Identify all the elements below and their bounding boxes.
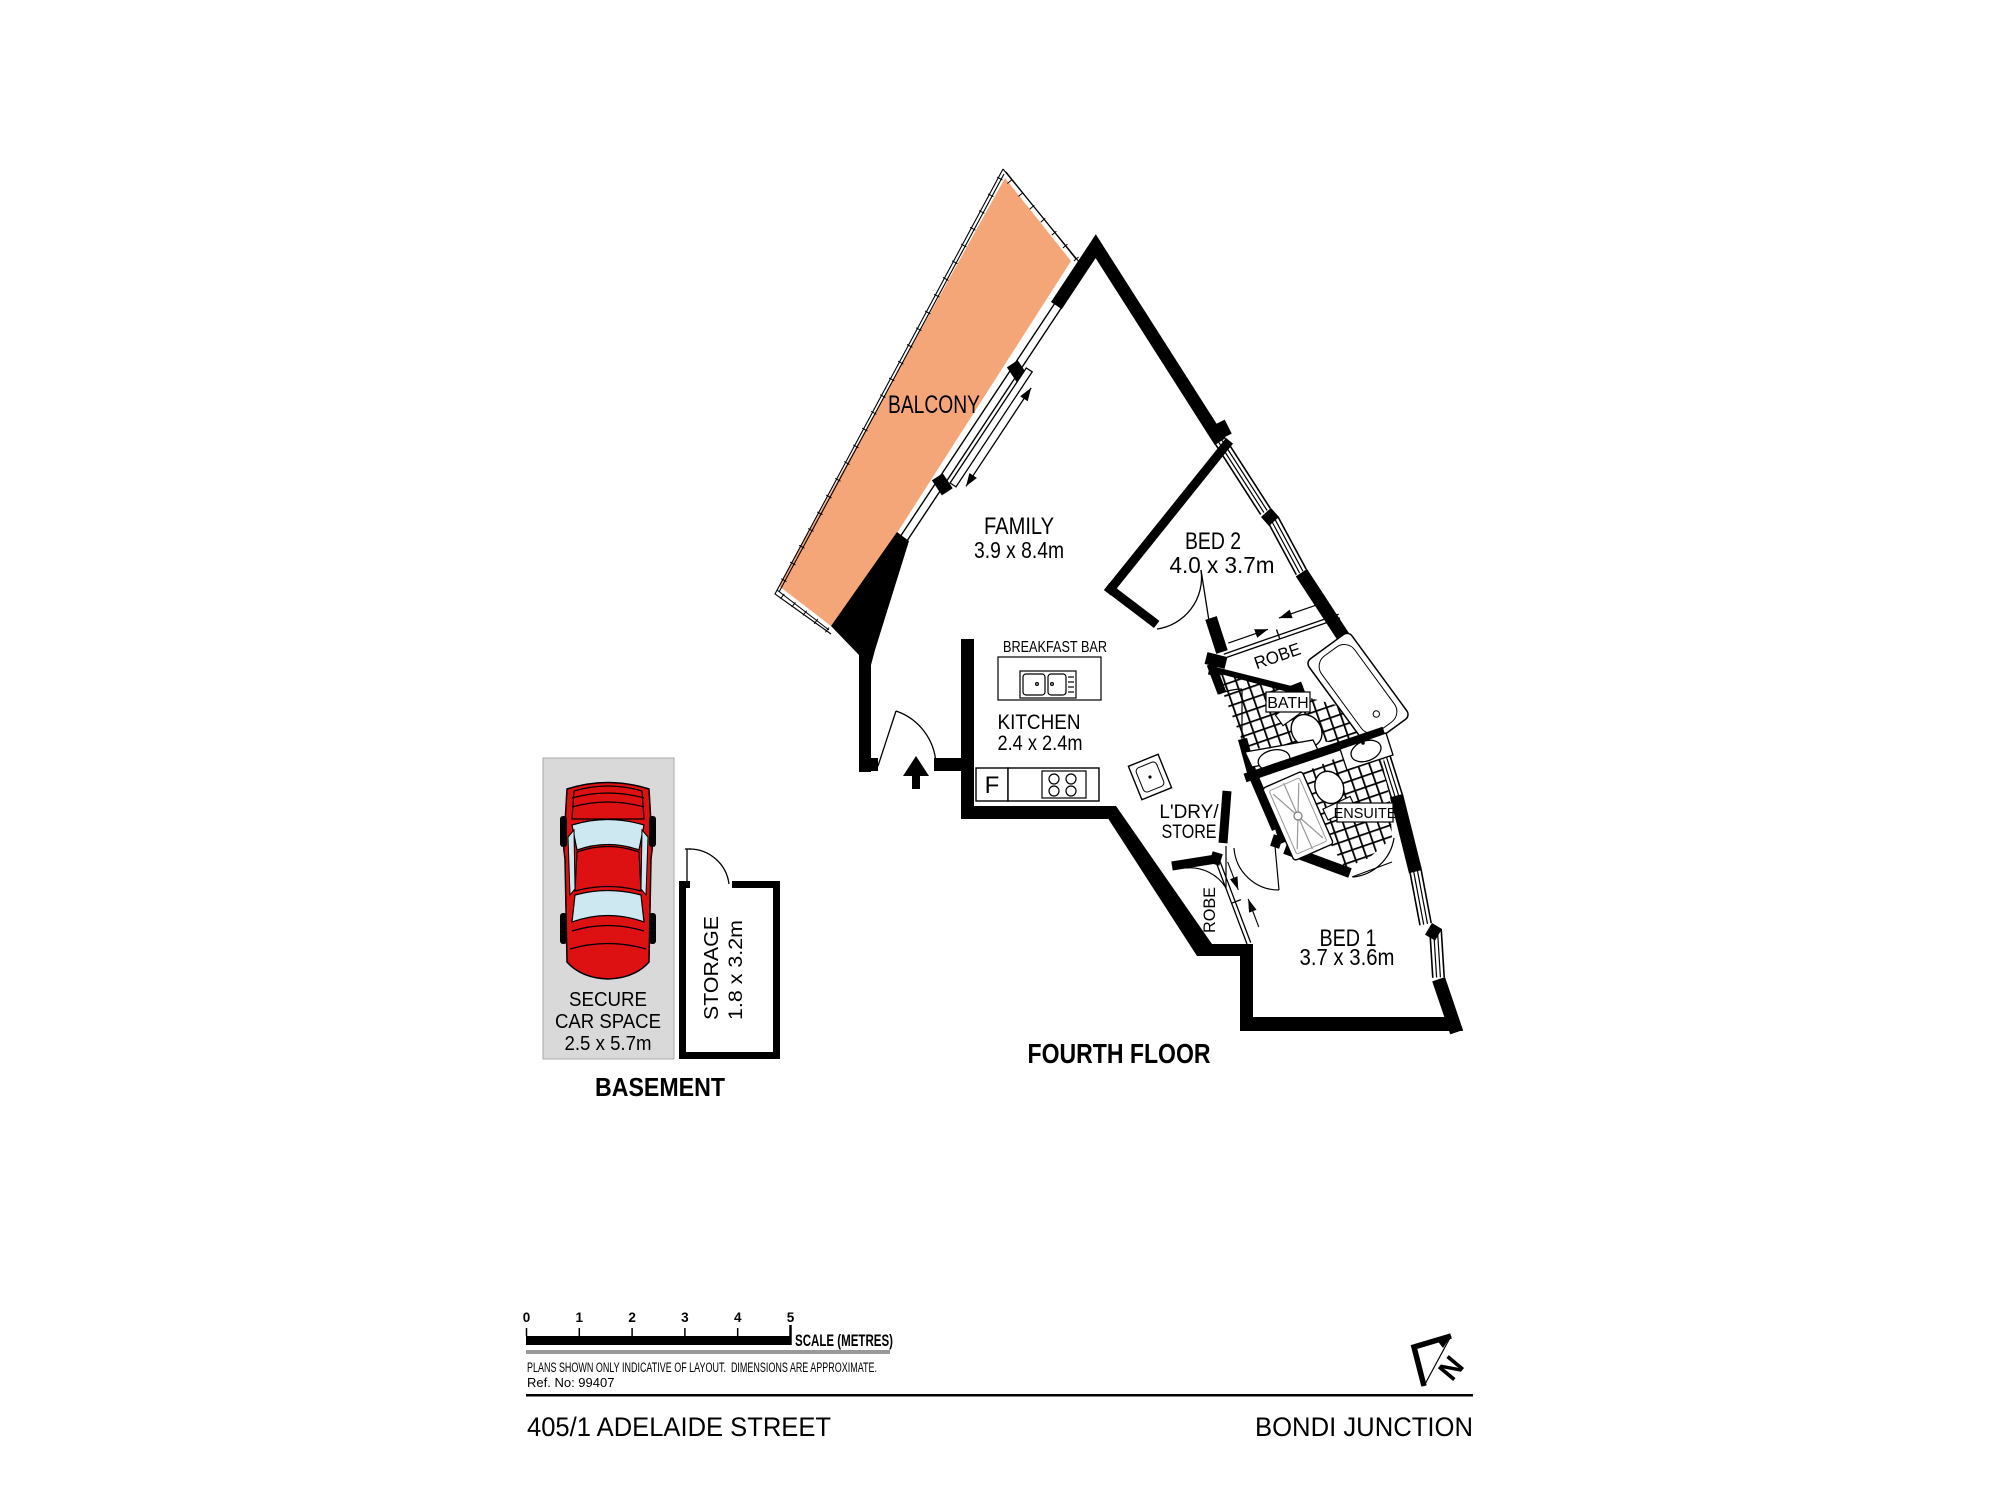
svg-text:ROBE: ROBE [1201,887,1219,933]
svg-text:BREAKFAST BAR: BREAKFAST BAR [1003,639,1107,656]
svg-text:BASEMENT: BASEMENT [595,1072,725,1102]
svg-text:ROBE: ROBE [1251,639,1303,674]
svg-text:SECURE: SECURE [569,989,647,1011]
svg-text:4: 4 [734,1310,742,1325]
svg-text:KITCHEN: KITCHEN [998,711,1081,734]
svg-text:5: 5 [787,1310,795,1325]
svg-text:F: F [985,772,1000,799]
svg-text:SCALE (METRES): SCALE (METRES) [795,1331,893,1350]
svg-text:FAMILY: FAMILY [984,513,1054,540]
svg-text:1.8 x 3.2m: 1.8 x 3.2m [726,920,747,1020]
svg-text:2.4 x 2.4m: 2.4 x 2.4m [998,732,1083,755]
svg-text:1: 1 [576,1310,584,1325]
svg-text:3.9 x 8.4m: 3.9 x 8.4m [974,537,1064,563]
svg-text:N: N [1433,1350,1471,1387]
svg-text:BALCONY: BALCONY [888,391,980,419]
svg-text:STORAGE: STORAGE [701,916,723,1020]
svg-text:4.0 x 3.7m: 4.0 x 3.7m [1170,552,1275,578]
svg-text:3: 3 [681,1310,689,1325]
svg-text:FOURTH FLOOR: FOURTH FLOOR [1028,1038,1211,1069]
svg-text:2: 2 [628,1310,636,1325]
svg-text:ENSUITE: ENSUITE [1334,806,1397,822]
svg-text:L'DRY/: L'DRY/ [1159,802,1219,823]
svg-text:405/1 ADELAIDE STREET: 405/1 ADELAIDE STREET [527,1412,831,1442]
svg-text:2.5 x 5.7m: 2.5 x 5.7m [565,1033,652,1055]
svg-text:BONDI JUNCTION: BONDI JUNCTION [1255,1412,1473,1442]
svg-text:3.7 x 3.6m: 3.7 x 3.6m [1300,944,1395,970]
svg-text:STORE: STORE [1162,822,1217,843]
svg-text:BED 2: BED 2 [1185,528,1241,555]
svg-text:BATH: BATH [1267,695,1308,712]
svg-text:PLANS SHOWN ONLY INDICATIVE OF: PLANS SHOWN ONLY INDICATIVE OF LAYOUT. D… [527,1360,877,1375]
svg-text:0: 0 [523,1310,531,1325]
svg-text:CAR SPACE: CAR SPACE [555,1011,661,1033]
svg-text:Ref. No: 99407: Ref. No: 99407 [527,1375,614,1390]
